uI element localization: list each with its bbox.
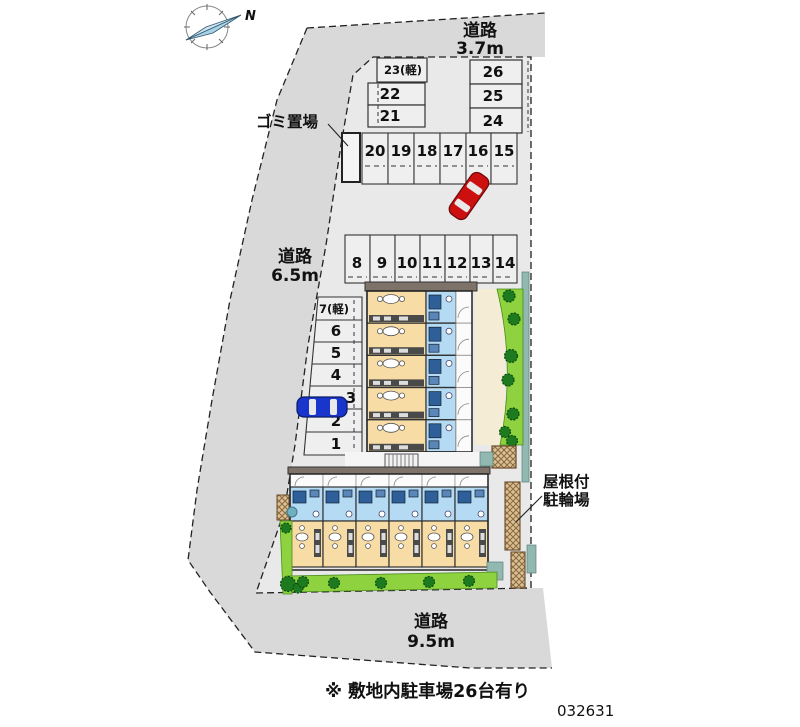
road-label-bottom: 道路 9.5m <box>407 611 455 652</box>
compass-icon: N <box>184 4 256 50</box>
garden-structure <box>492 446 516 468</box>
bicycle-label-line1: 屋根付 <box>543 472 590 491</box>
svg-text:9.5m: 9.5m <box>407 632 455 652</box>
svg-text:道路: 道路 <box>414 611 449 632</box>
plan-number: 032631 <box>557 702 614 720</box>
svg-text:6.5m: 6.5m <box>271 266 319 286</box>
stairs <box>385 454 418 467</box>
walkway-cream <box>475 289 505 445</box>
stall-18: 18 <box>417 142 438 160</box>
apartment-unit <box>367 388 472 420</box>
site-plan-canvas: 道路 3.7m 道路 6.5m 道路 9.5m 23(軽) 22 21 26 2… <box>0 0 800 727</box>
hatch-strip-left <box>277 495 289 520</box>
stall-1: 1 <box>331 435 341 453</box>
apartment-unit <box>367 420 472 452</box>
stall-23: 23(軽) <box>384 63 422 77</box>
stall-21: 21 <box>380 107 401 125</box>
stall-24: 24 <box>483 112 504 130</box>
building-lower-wing <box>288 467 490 570</box>
stall-19: 19 <box>391 142 412 160</box>
apartment-unit <box>367 323 472 355</box>
stall-25: 25 <box>483 87 504 105</box>
building-upper-wing <box>365 282 477 452</box>
bicycle-parking-strip <box>505 482 520 550</box>
stall-10: 10 <box>397 254 418 272</box>
apartment-unit <box>323 474 356 567</box>
wall-teal-lower <box>527 545 536 573</box>
stall-5: 5 <box>331 344 341 362</box>
parking-row-middle: 8 9 10 11 12 13 14 <box>345 235 517 283</box>
apartment-unit <box>356 474 389 567</box>
site-plan-page: 道路 3.7m 道路 6.5m 道路 9.5m 23(軽) 22 21 26 2… <box>0 0 800 727</box>
stall-6: 6 <box>331 322 341 340</box>
svg-text:道路: 道路 <box>463 20 498 41</box>
stall-14: 14 <box>495 254 516 272</box>
stall-15: 15 <box>494 142 515 160</box>
shrub-teal <box>287 507 297 517</box>
stall-20: 20 <box>365 142 386 160</box>
north-label: N <box>245 9 256 24</box>
parking-stack-top-left: 23(軽) 22 21 <box>368 58 427 127</box>
parking-row-upper: 20 19 18 17 16 15 <box>362 133 517 184</box>
stall-9: 9 <box>377 254 387 272</box>
blue-car-icon <box>297 397 347 417</box>
parking-note: ※ 敷地内駐車場26台有り <box>325 681 530 702</box>
apartment-unit <box>367 291 472 323</box>
stall-7: 7(軽) <box>319 302 349 316</box>
apartment-unit <box>389 474 422 567</box>
stall-11: 11 <box>422 254 443 272</box>
apartment-unit <box>455 474 488 567</box>
road-label-left: 道路 6.5m <box>271 246 319 286</box>
stall-8: 8 <box>352 254 362 272</box>
stall-16: 16 <box>468 142 489 160</box>
stall-17: 17 <box>443 142 464 160</box>
svg-text:3.7m: 3.7m <box>456 39 504 59</box>
stall-13: 13 <box>471 254 492 272</box>
bicycle-label-line2: 駐輪場 <box>543 490 590 509</box>
parking-stack-top-right: 26 25 24 <box>470 60 528 133</box>
wall-teal-entrance <box>480 452 493 466</box>
svg-text:道路: 道路 <box>278 246 313 267</box>
bicycle-parking-strip2 <box>511 552 525 588</box>
stall-12: 12 <box>447 254 468 272</box>
road-label-top: 道路 3.7m <box>456 20 504 59</box>
apartment-unit <box>422 474 455 567</box>
stall-26: 26 <box>483 63 504 81</box>
garbage-label: ゴミ置場 <box>256 112 319 131</box>
apartment-unit <box>290 474 323 567</box>
stall-22: 22 <box>380 85 401 103</box>
garbage-box <box>342 133 360 182</box>
stall-4: 4 <box>331 366 341 384</box>
apartment-unit <box>367 355 472 387</box>
